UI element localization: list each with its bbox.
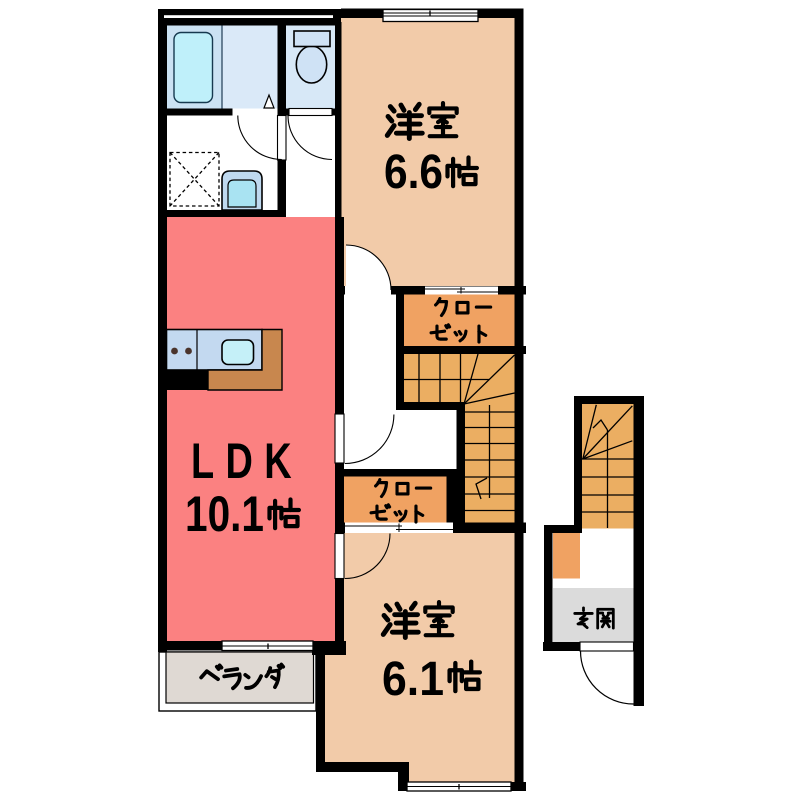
svg-text:LDK: LDK bbox=[191, 433, 303, 489]
svg-text:6.6: 6.6 bbox=[384, 146, 443, 199]
svg-text:10.1: 10.1 bbox=[185, 486, 264, 542]
svg-text:6.1: 6.1 bbox=[382, 653, 444, 706]
